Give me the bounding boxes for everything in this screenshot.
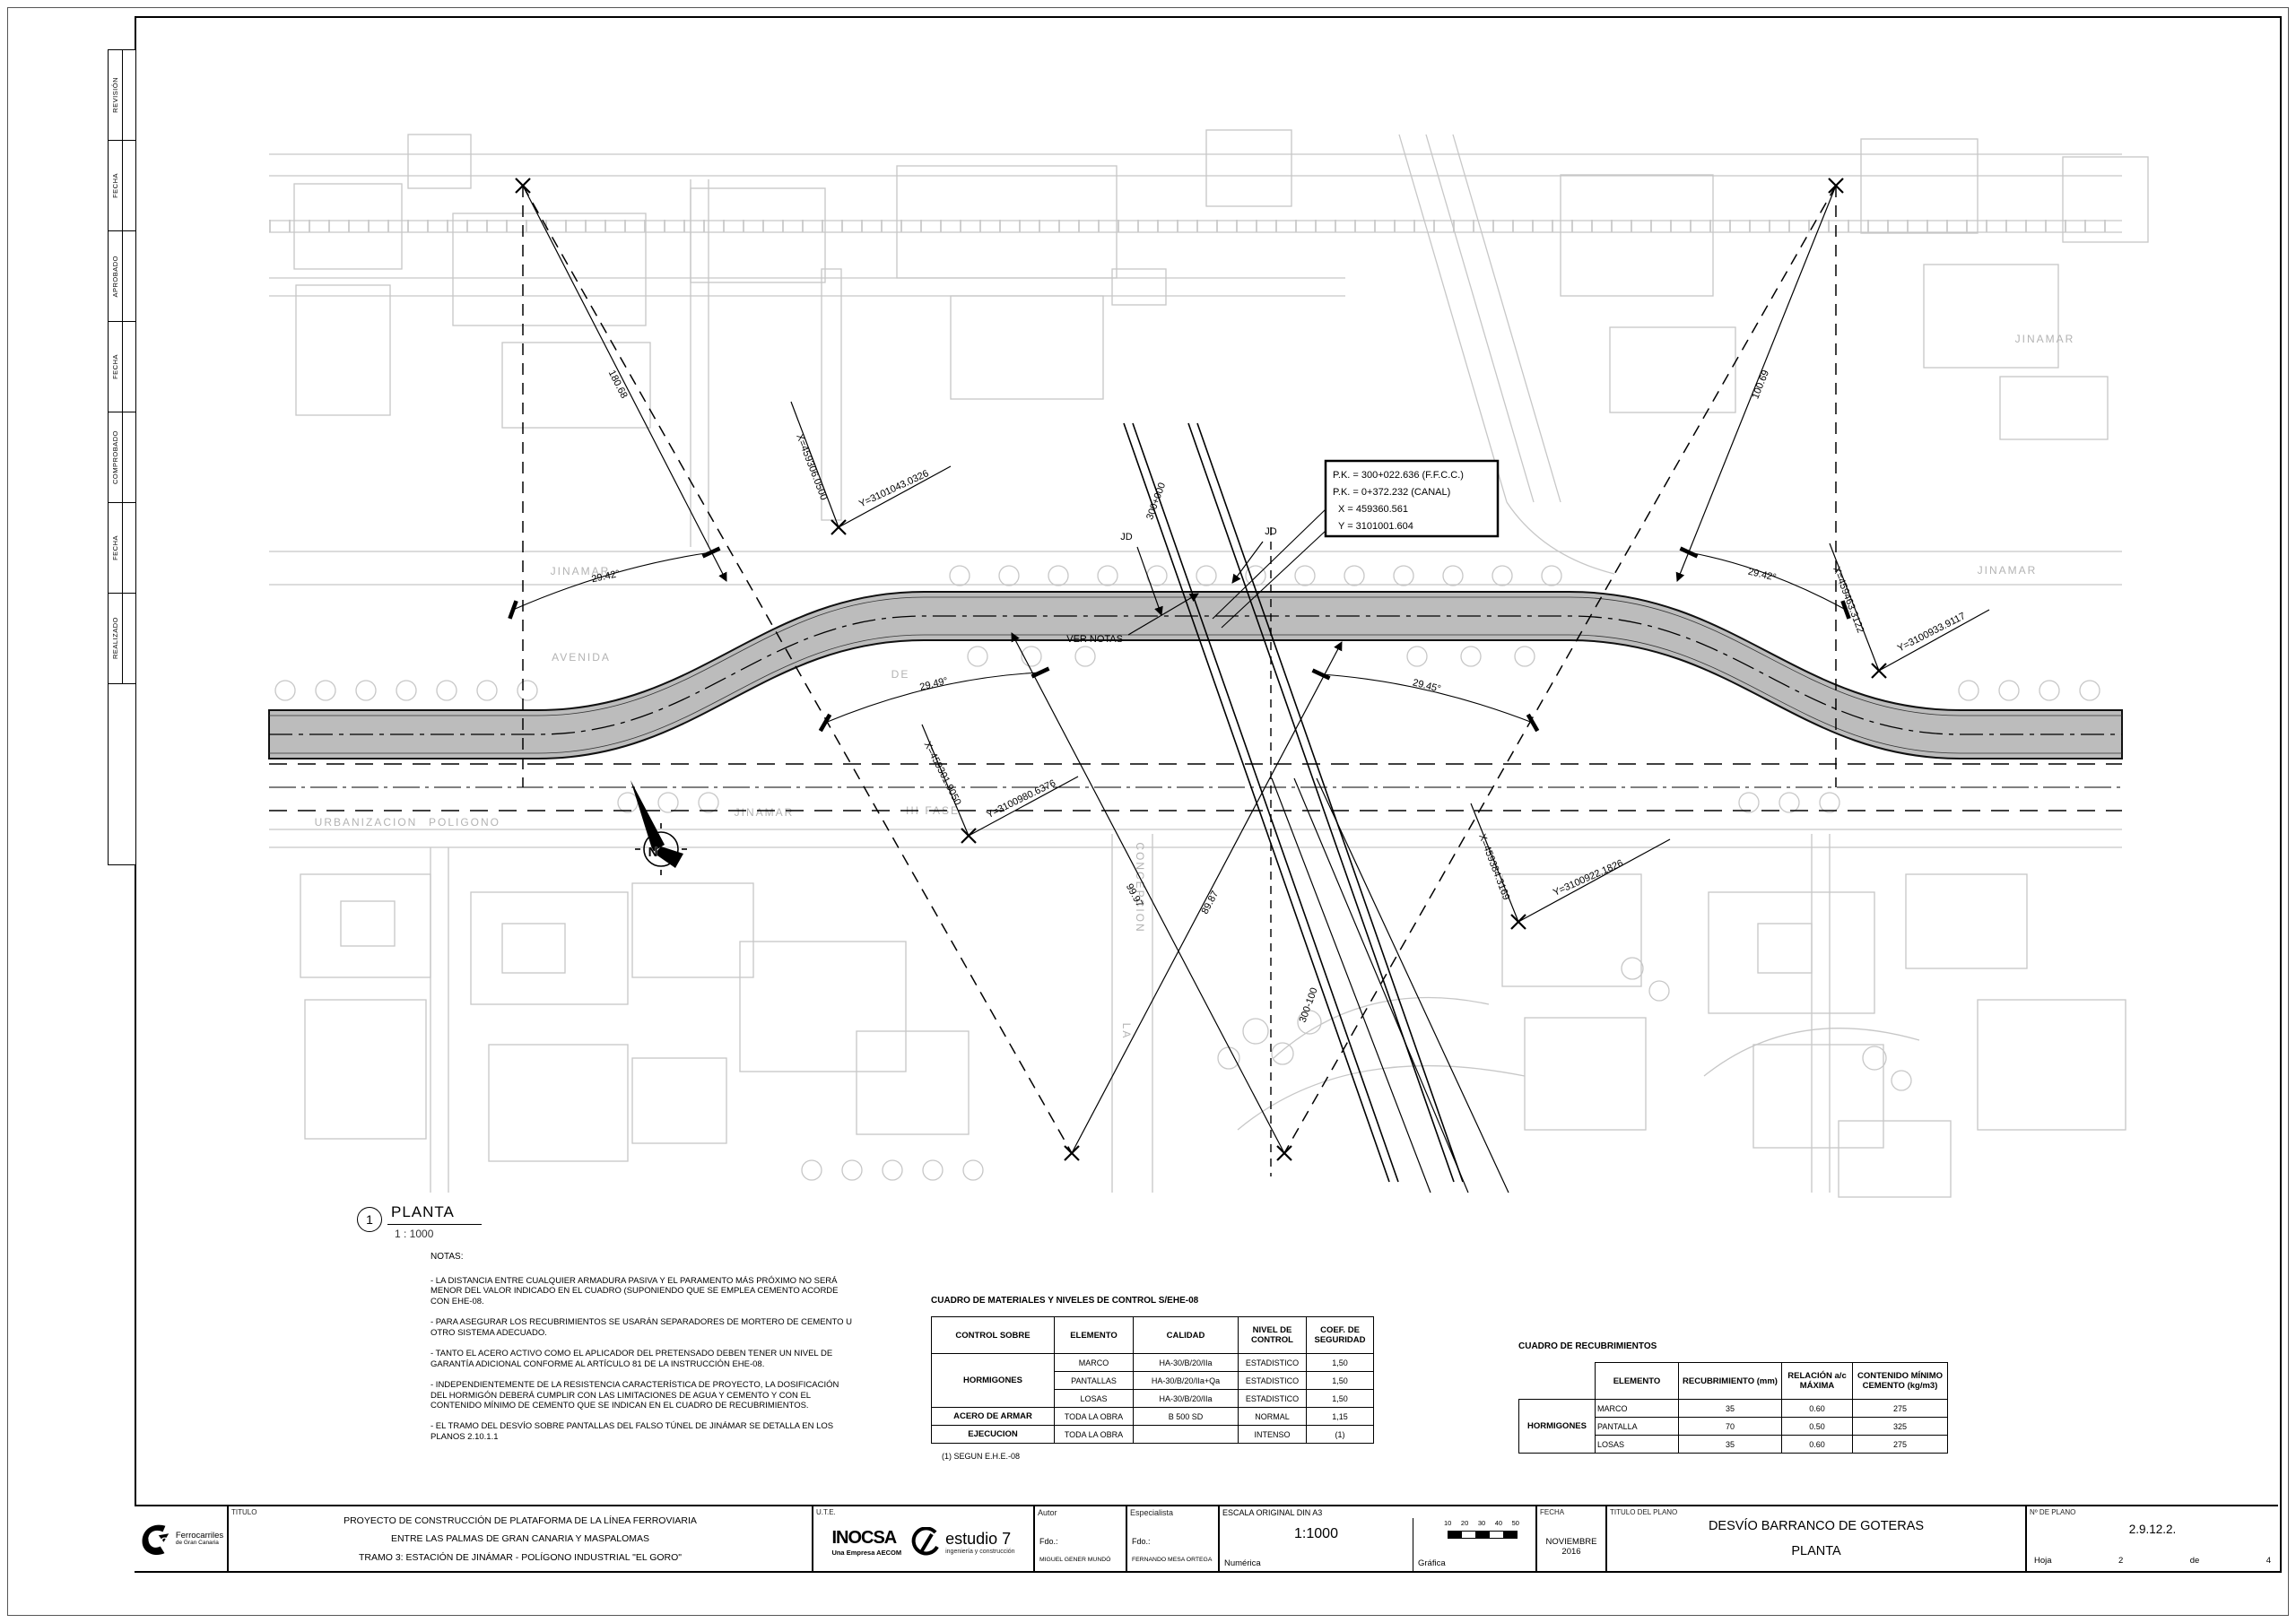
street-label: LA <box>1120 1023 1133 1040</box>
autor-label: Autor <box>1038 1508 1057 1517</box>
street-label: JINAMAR <box>735 806 795 819</box>
note-item: - EL TRAMO DEL DESVÍO SOBRE PANTALLAS DE… <box>430 1421 852 1443</box>
table-cell: 1,50 <box>1307 1354 1374 1372</box>
note-item: - PARA ASEGURAR LOS RECUBRIMIENTOS SE US… <box>430 1317 852 1339</box>
materials-footnote: (1) SEGUN E.H.E.-08 <box>931 1452 1374 1461</box>
plan-number-cell: Nº DE PLANO 2.9.12.2. Hoja 2 de 4 <box>2025 1506 2278 1571</box>
table-cell: HORMIGONES <box>1519 1400 1596 1454</box>
jd-label: JD <box>1265 526 1277 537</box>
coordinate-label: Y=3100980.6376 <box>985 777 1057 820</box>
plan-number-label: Nº DE PLANO <box>2030 1508 2075 1516</box>
column-header: ELEMENTO <box>1055 1317 1134 1354</box>
column-header: RELACIÓN a/c MÁXIMA <box>1782 1363 1853 1400</box>
table-cell: PANTALLAS <box>1055 1372 1134 1390</box>
note-item: - TANTO EL ACERO ACTIVO COMO EL APLICADO… <box>430 1349 852 1370</box>
table-cell: HORMIGONES <box>932 1354 1055 1408</box>
table-cell: 35 <box>1679 1436 1782 1454</box>
coordinate-label: Y=3100922.1826 <box>1552 858 1625 898</box>
estudio7-name: estudio 7 <box>945 1530 1014 1549</box>
sheet-title-cell: TITULO DEL PLANO DESVÍO BARRANCO DE GOTE… <box>1605 1506 2025 1571</box>
table-cell: ACERO DE ARMAR <box>932 1408 1055 1426</box>
sheet-title-line1: DESVÍO BARRANCO DE GOTERAS <box>1607 1519 2025 1533</box>
north-arrow-icon: N <box>631 780 687 875</box>
distance-label: 89.87 <box>1200 890 1222 916</box>
deviation-band-fill <box>269 592 2122 759</box>
scale-graphic-label: Gráfica <box>1418 1558 1446 1568</box>
table-cell: PANTALLA <box>1596 1418 1679 1436</box>
tgc-logo-cell: TGC Ferrocarriles de Gran Canaria <box>135 1506 227 1571</box>
pk-line: P.K. = 0+372.232 (CANAL) <box>1333 487 1450 498</box>
project-title-line: ENTRE LAS PALMAS DE GRAN CANARIA Y MASPA… <box>229 1530 812 1548</box>
table-cell: B 500 SD <box>1134 1408 1239 1426</box>
column-header: CONTROL SOBRE <box>932 1317 1055 1354</box>
scale-tick: 40 <box>1495 1519 1502 1527</box>
table-cell: 0.60 <box>1782 1400 1853 1418</box>
tree-symbols <box>275 566 2100 1180</box>
drawing-sheet: REVISIÓN FECHA APROBADO FECHA COMPROBADO… <box>0 0 2296 1623</box>
autor-fdo: Fdo.: <box>1039 1537 1058 1546</box>
date-cell: FECHA NOVIEMBRE 2016 <box>1535 1506 1605 1571</box>
canal-deviation-band <box>269 592 2122 811</box>
pk-line: Y = 3101001.604 <box>1338 521 1413 532</box>
north-letter: N <box>648 845 658 860</box>
plan-view-label: 1 PLANTA 1 : 1000 <box>357 1203 482 1240</box>
street-label: JINAMAR <box>2015 333 2075 345</box>
scale-tick: 30 <box>1478 1519 1485 1527</box>
tgc-sub: de Gran Canaria <box>176 1541 223 1547</box>
fecha-value: NOVIEMBRE 2016 <box>1537 1537 1605 1557</box>
scale-value: 1:1000 <box>1220 1526 1413 1542</box>
coordinate-label: X=459384.3169 <box>1476 832 1511 901</box>
fecha-label: FECHA <box>1540 1508 1564 1516</box>
note-item: - LA DISTANCIA ENTRE CUALQUIER ARMADURA … <box>430 1276 852 1308</box>
estudio7-sub: ingeniería y construcción <box>945 1549 1014 1555</box>
hoja-label: Hoja <box>2034 1556 2052 1566</box>
table-cell: LOSAS <box>1055 1390 1134 1408</box>
table-cell: 70 <box>1679 1418 1782 1436</box>
scale-tick: 50 <box>1512 1519 1519 1527</box>
column-header: ELEMENTO <box>1596 1363 1679 1400</box>
coordinate-label: Y=3100933.9117 <box>1896 611 1968 655</box>
note-item: - INDEPENDIENTEMENTE DE LA RESISTENCIA C… <box>430 1380 852 1412</box>
street-label: JINAMAR <box>1978 564 2038 577</box>
inocsa-sub: Una Empresa AECOM <box>831 1549 901 1557</box>
table-cell: 275 <box>1853 1436 1948 1454</box>
notes-title: NOTAS: <box>430 1252 852 1263</box>
table-cell: LOSAS <box>1596 1436 1679 1454</box>
column-header: NIVEL DE CONTROL <box>1239 1317 1307 1354</box>
coordinate-label: Y=3101043.0326 <box>857 468 930 509</box>
table-cell: HA-30/B/20/IIa <box>1134 1390 1239 1408</box>
title-block: TGC Ferrocarriles de Gran Canaria TITULO… <box>135 1505 2278 1571</box>
table-cell <box>1134 1426 1239 1444</box>
table-cell: 35 <box>1679 1400 1782 1418</box>
pk-line: P.K. = 300+022.636 (F.F.C.C.) <box>1333 470 1464 481</box>
angle-label: 29.49° <box>918 675 949 692</box>
table-cell: ESTADISTICO <box>1239 1354 1307 1372</box>
table-cell: TODA LA OBRA <box>1055 1426 1134 1444</box>
graphic-scale-ticks: 10 20 30 40 50 <box>1444 1519 1519 1527</box>
scale-numeric-label: Numérica <box>1224 1558 1261 1568</box>
inocsa-logo: INOCSA <box>831 1528 901 1549</box>
ute-cell: U.T.E. INOCSA Una Empresa AECOM estudio … <box>812 1506 1033 1571</box>
project-title-line: PROYECTO DE CONSTRUCCIÓN DE PLATAFORMA D… <box>229 1512 812 1530</box>
graphic-scale-bar <box>1448 1531 1518 1539</box>
table-cell: MARCO <box>1055 1354 1134 1372</box>
column-header: COEF. DE SEGURIDAD <box>1307 1317 1374 1354</box>
coordinate-label: X=459306.0500 <box>794 432 829 501</box>
plan-number-value: 2.9.12.2. <box>2027 1523 2278 1536</box>
autor-cell: Autor Fdo.: MIGUEL GENER MUNDÓ <box>1033 1506 1126 1571</box>
table-cell: 0.60 <box>1782 1436 1853 1454</box>
hoja-number: 2 <box>2118 1556 2123 1566</box>
project-title-cell: TITULO PROYECTO DE CONSTRUCCIÓN DE PLATA… <box>227 1506 812 1571</box>
street-label: AVENIDA <box>552 651 611 664</box>
angle-label: 29.42° <box>1747 567 1778 584</box>
scale-cell: ESCALA ORIGINAL DIN A3 1:1000 Numérica 1… <box>1218 1506 1535 1571</box>
table-cell: HA-30/B/20/IIa+Qa <box>1134 1372 1239 1390</box>
view-title: PLANTA <box>387 1203 482 1225</box>
sheet-title-line2: PLANTA <box>1607 1544 2025 1558</box>
table-cell: 0.50 <box>1782 1418 1853 1436</box>
jd-label: JD <box>1120 532 1133 542</box>
scale-tick: 10 <box>1444 1519 1451 1527</box>
distance-label: 180.68 <box>606 369 630 400</box>
view-scale: 1 : 1000 <box>387 1225 482 1240</box>
autor-name: MIGUEL GENER MUNDÓ <box>1039 1557 1110 1563</box>
coverings-table: CUADRO DE RECUBRIMIENTOS ELEMENTO RECUBR… <box>1518 1341 1948 1454</box>
ute-label: U.T.E. <box>816 1508 836 1516</box>
svg-text:TGC: TGC <box>147 1537 167 1547</box>
especialista-name: FERNANDO MESA ORTEGA <box>1132 1557 1212 1563</box>
estudio7-logo-icon <box>910 1527 941 1558</box>
table-cell: TODA LA OBRA <box>1055 1408 1134 1426</box>
table-cell: 275 <box>1853 1400 1948 1418</box>
project-title-line: TRAMO 3: ESTACIÓN DE JINÁMAR - POLÍGONO … <box>229 1549 812 1567</box>
de-label: de <box>2190 1556 2200 1566</box>
coverings-table-title: CUADRO DE RECUBRIMIENTOS <box>1518 1341 1948 1351</box>
scale-tick: 20 <box>1461 1519 1468 1527</box>
existing-channel-lines <box>269 764 2122 811</box>
ver-notas-label: VER NOTAS <box>1066 634 1123 645</box>
empty-header-cell <box>1519 1363 1596 1400</box>
street-label: URBANIZACION <box>315 816 418 829</box>
railway-crossing-lines <box>1124 423 1509 1193</box>
tgc-logo-icon: TGC <box>138 1522 172 1556</box>
sheet-title-label: TITULO DEL PLANO <box>1610 1508 1677 1516</box>
especialista-fdo: Fdo.: <box>1132 1537 1151 1546</box>
materials-control-table: CUADRO DE MATERIALES Y NIVELES DE CONTRO… <box>931 1296 1374 1461</box>
table-cell: 325 <box>1853 1418 1948 1436</box>
table-cell: ESTADISTICO <box>1239 1372 1307 1390</box>
table-cell: 1,50 <box>1307 1372 1374 1390</box>
table-cell: HA-30/B/20/IIa <box>1134 1354 1239 1372</box>
especialista-cell: Especialista Fdo.: FERNANDO MESA ORTEGA <box>1126 1506 1218 1571</box>
table-cell: 1,50 <box>1307 1390 1374 1408</box>
chainage-label: 300-100 <box>1298 986 1320 1024</box>
angle-label: 29.45° <box>1412 677 1442 694</box>
table-cell: ESTADISTICO <box>1239 1390 1307 1408</box>
view-number-bubble: 1 <box>357 1207 382 1232</box>
table-cell: MARCO <box>1596 1400 1679 1418</box>
coordinate-label: X=459301.9050 <box>922 740 963 807</box>
table-cell: NORMAL <box>1239 1408 1307 1426</box>
notes-block: NOTAS: - LA DISTANCIA ENTRE CUALQUIER AR… <box>430 1252 852 1453</box>
street-label: POLIGONO <box>429 816 500 829</box>
scale-label: ESCALA ORIGINAL DIN A3 <box>1222 1508 1322 1517</box>
table-cell: (1) <box>1307 1426 1374 1444</box>
pk-line: X = 459360.561 <box>1338 504 1408 515</box>
scale-divider <box>1413 1518 1413 1571</box>
especialista-label: Especialista <box>1130 1508 1173 1517</box>
hoja-total: 4 <box>2266 1556 2271 1566</box>
column-header: CONTENIDO MÍNIMO CEMENTO (kg/m3) <box>1853 1363 1948 1400</box>
materials-table-title: CUADRO DE MATERIALES Y NIVELES DE CONTRO… <box>931 1296 1374 1306</box>
street-label: DE <box>891 668 910 681</box>
table-cell: 1,15 <box>1307 1408 1374 1426</box>
column-header: CALIDAD <box>1134 1317 1239 1354</box>
column-header: RECUBRIMIENTO (mm) <box>1679 1363 1782 1400</box>
table-cell: INTENSO <box>1239 1426 1307 1444</box>
distance-label: 100.69 <box>1750 369 1771 401</box>
table-cell: EJECUCION <box>932 1426 1055 1444</box>
